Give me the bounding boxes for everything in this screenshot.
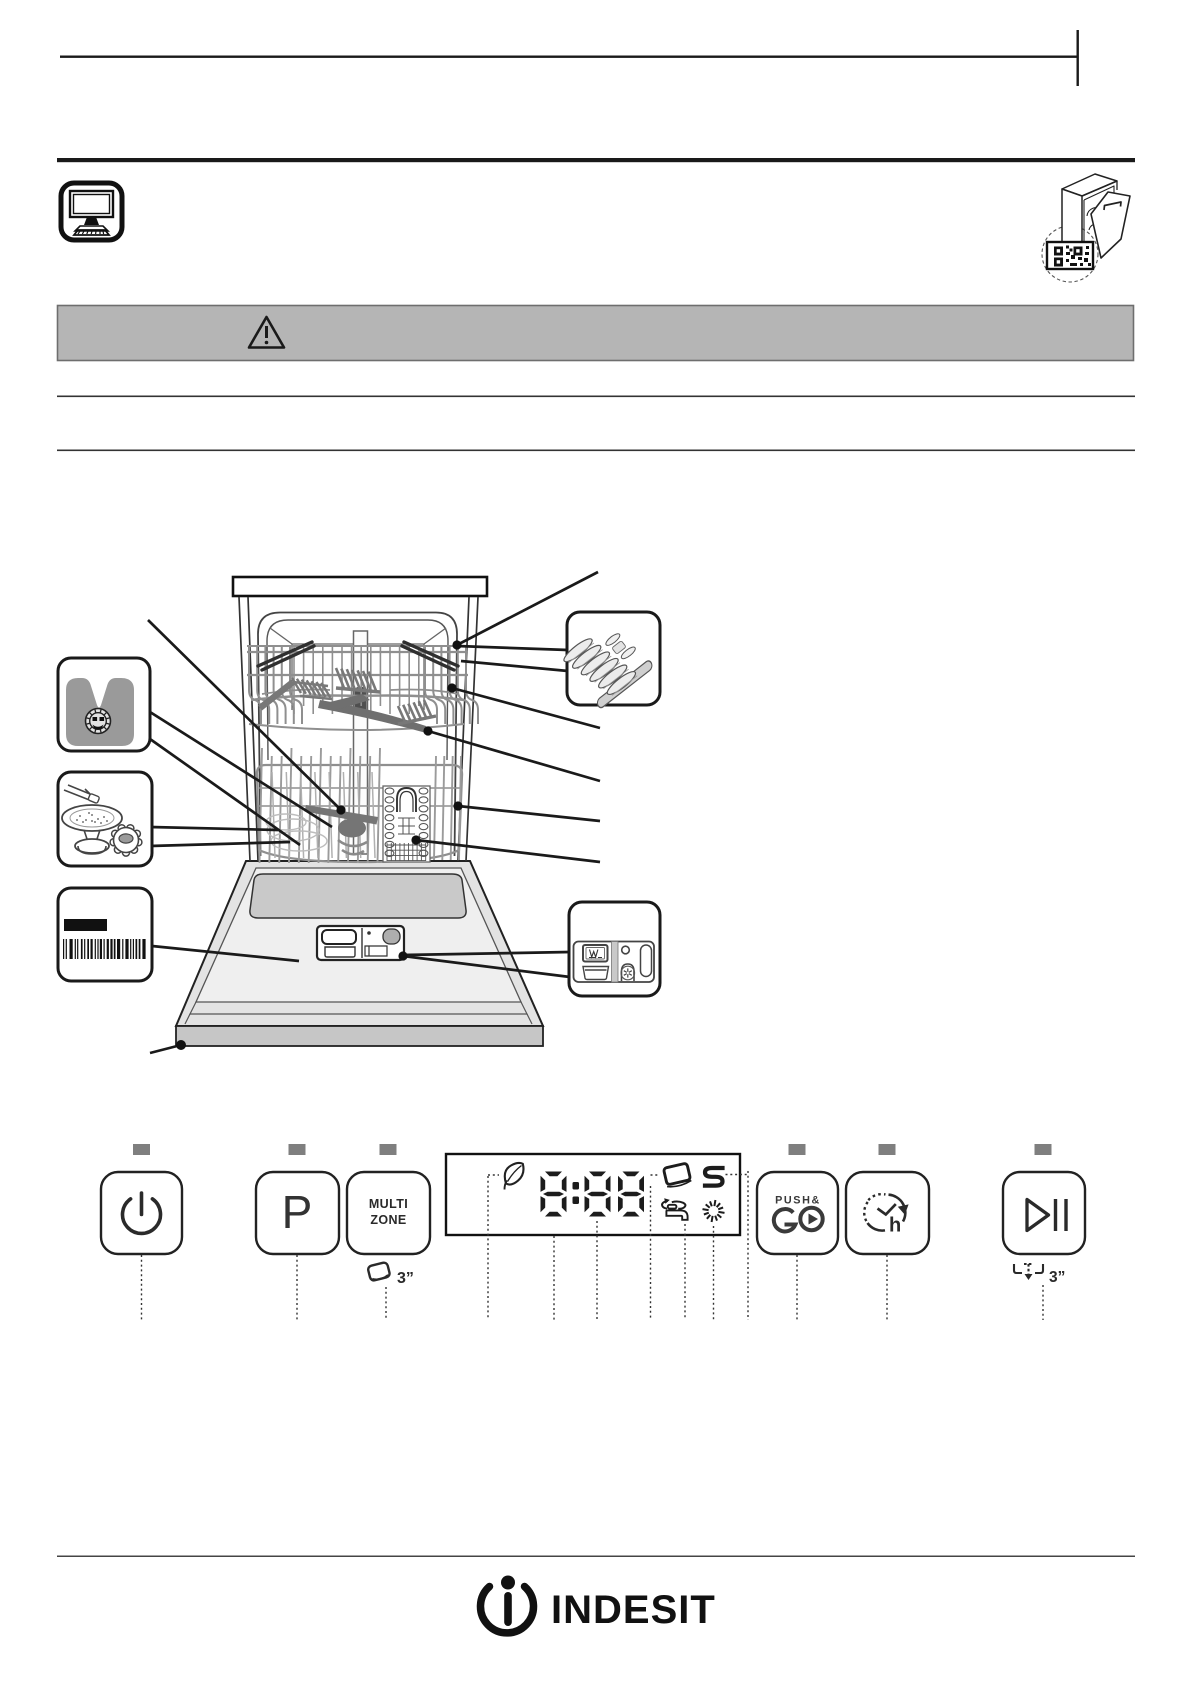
svg-text:PUSH&: PUSH& — [775, 1195, 821, 1207]
svg-text:INDESIT: INDESIT — [551, 1588, 716, 1632]
svg-text:3”: 3” — [397, 1270, 414, 1287]
svg-text:h: h — [889, 1215, 901, 1237]
svg-text:MULTI: MULTI — [369, 1197, 408, 1211]
svg-text:ZONE: ZONE — [370, 1213, 406, 1227]
svg-text:3”: 3” — [1049, 1269, 1065, 1286]
svg-text:P: P — [282, 1186, 313, 1238]
